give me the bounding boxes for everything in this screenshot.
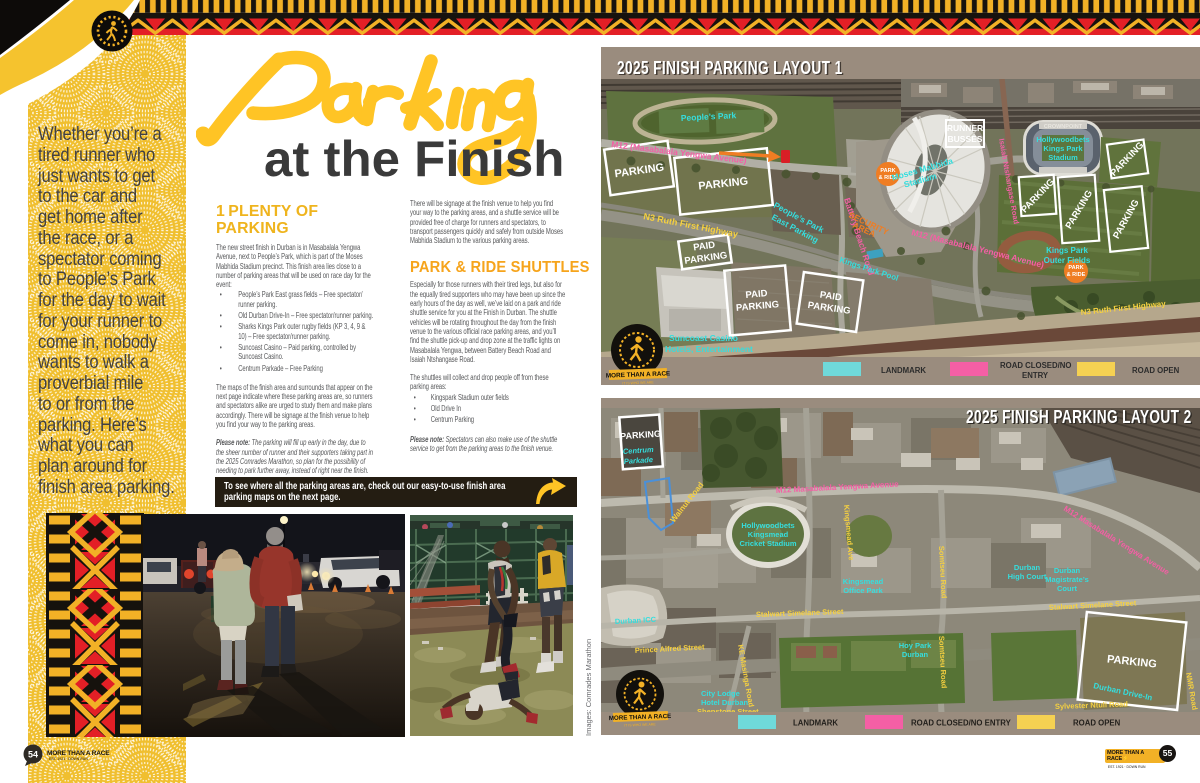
svg-text:Durban: Durban [1054,566,1081,575]
svg-text:2025 FINISH PARKING LAYOUT 2: 2025 FINISH PARKING LAYOUT 2 [966,407,1192,427]
svg-text:High Court: High Court [1008,572,1047,581]
svg-text:Outer Fields: Outer Fields [1044,256,1091,265]
svg-text:Hollywoodbets: Hollywoodbets [741,521,794,530]
svg-text:Hoy Park: Hoy Park [899,641,932,650]
svg-text:Kings Park: Kings Park [1043,144,1083,153]
svg-text:PARK: PARK [1068,265,1083,271]
svg-text:CROWNPOINT: CROWNPOINT [1044,124,1083,130]
svg-text:RUNNER: RUNNER [947,123,983,133]
svg-text:ROAD CLOSED/NO ENTRY: ROAD CLOSED/NO ENTRY [911,719,1012,728]
svg-text:Cricket Stadium: Cricket Stadium [739,539,796,548]
svg-text:LANDMARK: LANDMARK [881,366,926,375]
svg-text:ROAD OPEN: ROAD OPEN [1073,719,1121,728]
svg-text:ENTRY: ENTRY [1022,371,1049,380]
svg-text:Magistrate’s: Magistrate’s [1045,575,1089,584]
svg-text:ROAD OPEN: ROAD OPEN [1132,366,1180,375]
svg-text:Suncoast Casino: Suncoast Casino [669,333,738,343]
svg-text:Hotel Durban: Hotel Durban [701,698,749,707]
svg-text:IT IS WHO WE ARE: IT IS WHO WE ARE [622,380,654,385]
svg-text:Durban: Durban [902,650,929,659]
svg-text:PAID: PAID [745,288,768,301]
svg-text:City Lodge: City Lodge [701,689,740,698]
svg-text:Kings Park: Kings Park [1046,246,1088,255]
svg-text:Hollywoodbets: Hollywoodbets [1036,135,1089,144]
svg-text:54: 54 [28,750,38,760]
svg-text:Office Park: Office Park [843,586,883,595]
svg-text:ROAD CLOSED/NO: ROAD CLOSED/NO [1000,361,1071,370]
svg-text:Kingsmead: Kingsmead [843,577,884,586]
svg-text:Durban: Durban [1014,563,1041,572]
svg-text:& RIDE: & RIDE [1067,272,1086,278]
svg-text:Kingsmead: Kingsmead [748,530,789,539]
svg-text:Hotels, Entertainment: Hotels, Entertainment [665,344,753,354]
svg-text:LANDMARK: LANDMARK [793,719,838,728]
svg-text:2025 FINISH PARKING LAYOUT 1: 2025 FINISH PARKING LAYOUT 1 [617,58,843,78]
svg-text:Court: Court [1057,584,1077,593]
svg-text:BUSSES: BUSSES [948,134,983,144]
svg-text:Stadium: Stadium [1048,153,1078,162]
